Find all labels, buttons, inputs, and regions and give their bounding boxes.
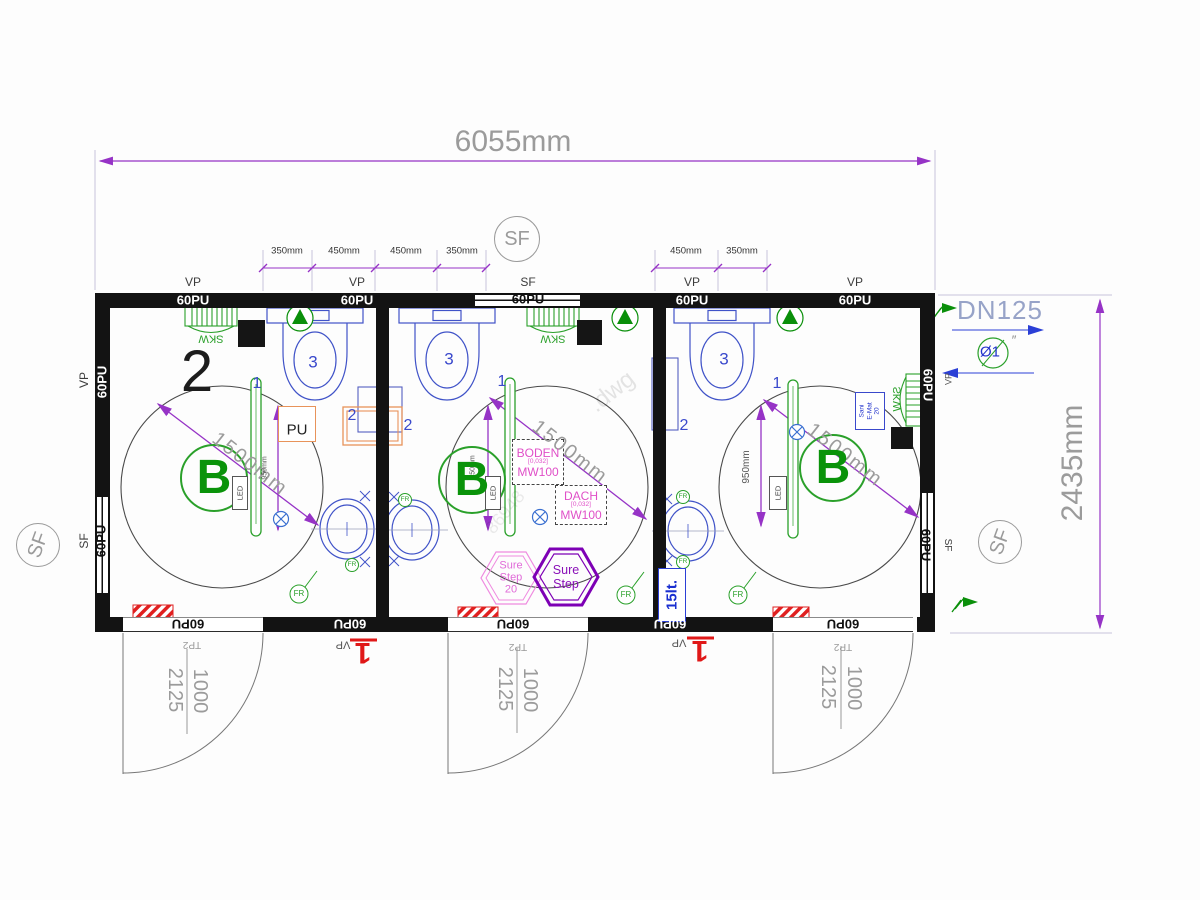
dn-pipe-label: DN125 bbox=[957, 297, 1043, 323]
position-label-2: 2 bbox=[348, 408, 357, 424]
datum-mark: 1 bbox=[355, 637, 372, 667]
position-label-1: 1 bbox=[773, 376, 782, 392]
wall-panel-label: 60PU bbox=[654, 618, 687, 631]
led-label: LED bbox=[236, 486, 244, 501]
sub-dim-label: 350mm bbox=[446, 246, 478, 256]
position-label-3: 3 bbox=[719, 351, 728, 368]
skw-heater-label: SKW bbox=[540, 333, 565, 344]
vp-mark: VP bbox=[684, 276, 700, 288]
skw-heater-label: SKW bbox=[198, 333, 223, 344]
vp-mark: VP bbox=[336, 639, 351, 650]
wall-panel-label: 60PU bbox=[177, 294, 210, 307]
position-label-2: 2 bbox=[404, 418, 413, 434]
door-type-label: TP2 bbox=[509, 641, 527, 651]
vp-mark: VP bbox=[349, 276, 365, 288]
fr-tag-label: FR bbox=[621, 591, 632, 599]
vp-mark: VP bbox=[672, 637, 687, 648]
wall-panel-label: 60PU bbox=[95, 525, 108, 558]
fr-tag-label: FR bbox=[733, 591, 744, 599]
led-label: LED bbox=[489, 486, 497, 501]
pu-tag-label: PU bbox=[287, 423, 308, 438]
fr-tag-label: FR bbox=[679, 494, 688, 501]
sub-dim-label: 450mm bbox=[328, 246, 360, 256]
overall-height-dim: 2435mm bbox=[1058, 405, 1088, 522]
barrier-free-symbol: B bbox=[197, 454, 232, 502]
wall-panel-label: 60PU bbox=[497, 618, 530, 631]
skw-heater-label: SKW bbox=[893, 386, 904, 411]
floor-plan-drawing bbox=[0, 0, 1200, 900]
wall-bottom bbox=[95, 617, 123, 632]
cad-floor-plan-page: { "dims": { "overall_width": "6055mm", "… bbox=[0, 0, 1200, 900]
door-height-label: 2125 bbox=[165, 668, 185, 713]
sf-mark: SF bbox=[942, 539, 952, 552]
dach-spec: DACH [0,032] MW100 bbox=[560, 490, 601, 521]
overall-width-dim: 6055mm bbox=[455, 127, 572, 157]
datum-mark-bar bbox=[350, 638, 714, 640]
vp-mark: VP bbox=[78, 372, 90, 388]
wall-panel-label: 60PU bbox=[341, 294, 374, 307]
sure-step-label: Sure Step 20 bbox=[499, 561, 522, 596]
sf-mark: SF bbox=[78, 533, 90, 548]
door-type-label: TP2 bbox=[834, 641, 852, 651]
wall-panel-label: 60PU bbox=[512, 293, 545, 306]
datum-mark: 1 bbox=[692, 635, 709, 665]
sf-bubble-label: SF bbox=[504, 229, 530, 249]
partition-wall bbox=[376, 308, 389, 617]
position-label-2: 2 bbox=[680, 418, 689, 434]
wall-panel-label: 60PU bbox=[839, 294, 872, 307]
position-label-3: 3 bbox=[308, 354, 317, 371]
fr-tag-label: FR bbox=[348, 562, 357, 569]
door-swing bbox=[123, 633, 913, 774]
door-type-label: TP2 bbox=[183, 639, 201, 649]
grab-height-label: 950mm bbox=[742, 450, 752, 483]
door-width-label: 1000 bbox=[844, 666, 864, 711]
wall-panel-label: 60PU bbox=[922, 369, 935, 402]
barrier-free-symbol: B bbox=[455, 456, 490, 504]
wall-panel-label: 60PU bbox=[827, 618, 860, 631]
vp-mark: VP bbox=[185, 276, 201, 288]
sub-dim-label: 450mm bbox=[390, 246, 422, 256]
sani-e-mat-label: Sani E-Mat 20 bbox=[859, 402, 881, 419]
led-label: LED bbox=[774, 486, 782, 501]
fr-tag-label: FR bbox=[294, 590, 305, 598]
sub-dim-label: 350mm bbox=[271, 246, 303, 256]
boden-spec: BODEN [0,032] MW100 bbox=[517, 447, 560, 478]
position-label-1: 1 bbox=[253, 376, 262, 392]
sf-mark: SF bbox=[520, 276, 535, 288]
vp-mark: VP bbox=[847, 276, 863, 288]
wall-panel-label: 60PU bbox=[334, 618, 367, 631]
room-plan-number: 2 bbox=[181, 343, 213, 401]
position-label-3: 3 bbox=[444, 351, 453, 368]
wall-top bbox=[95, 293, 475, 308]
wall-panel-label: 60PU bbox=[676, 294, 709, 307]
door-height-label: 2125 bbox=[495, 667, 515, 712]
fr-tag-label: FR bbox=[401, 497, 410, 504]
wall-panel-label: 60PU bbox=[920, 529, 933, 562]
grab-height-label: 950mm bbox=[262, 456, 269, 479]
wall-left bbox=[95, 308, 110, 497]
pipe-diameter-label: Ø1 bbox=[980, 345, 1000, 360]
sure-step-label: Sure Step bbox=[553, 564, 579, 590]
wall-top bbox=[580, 293, 935, 308]
sub-dim-label: 450mm bbox=[670, 246, 702, 256]
electrical-arrow-icon bbox=[933, 303, 978, 612]
wall-panel-label: 60PU bbox=[172, 618, 205, 631]
door-width-label: 1000 bbox=[520, 668, 540, 713]
barrier-free-symbol: B bbox=[816, 444, 851, 492]
wall-panel-label: 60PU bbox=[96, 366, 109, 399]
position-label-1: 1 bbox=[498, 374, 507, 390]
sub-dim-label: 350mm bbox=[726, 246, 758, 256]
door-height-label: 2125 bbox=[818, 665, 838, 710]
boiler-label: 15lt. bbox=[665, 580, 680, 610]
door-width-label: 1000 bbox=[190, 669, 210, 714]
pipe-inch-label: ″ bbox=[1012, 334, 1017, 347]
vp-mark: VP bbox=[945, 373, 954, 385]
wall-bottom bbox=[917, 617, 935, 632]
fr-tag-label: FR bbox=[679, 559, 688, 566]
toilet bbox=[267, 308, 770, 400]
